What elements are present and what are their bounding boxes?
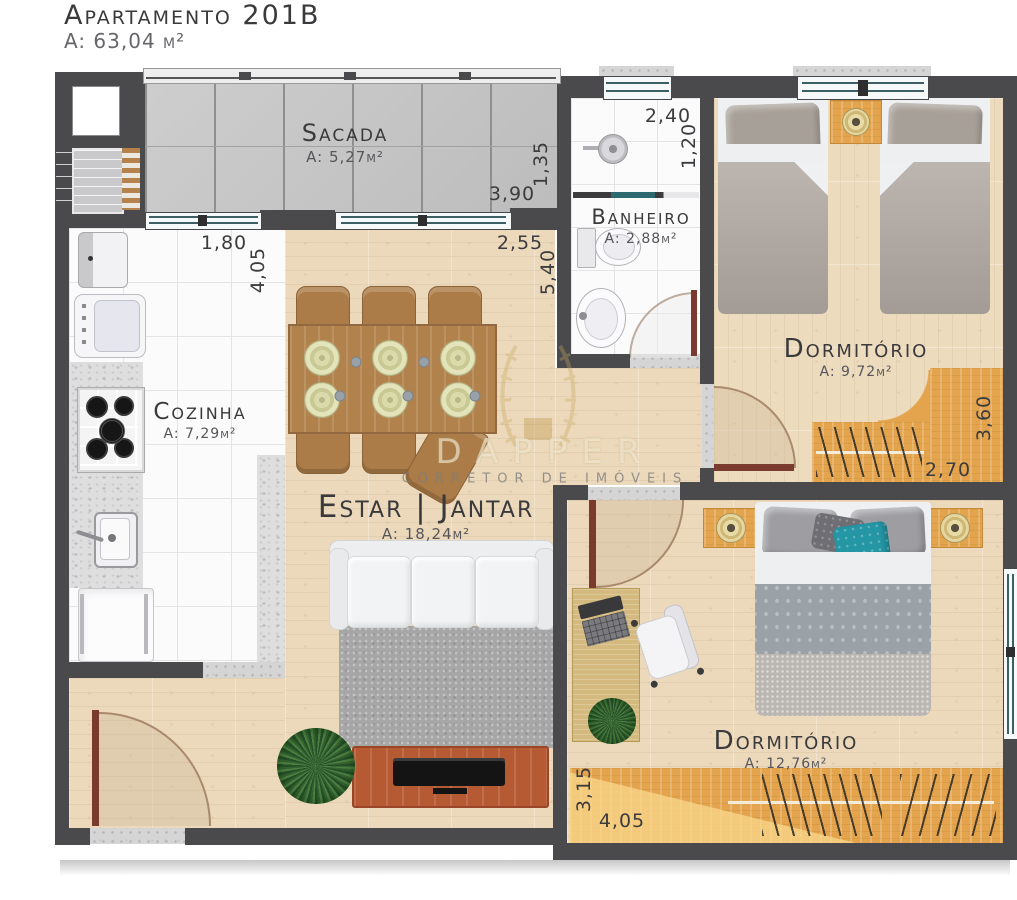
- outer-wall-right: [1003, 76, 1017, 568]
- nightstand-lamp: [716, 513, 746, 543]
- bedroom2-bottom-wall: [553, 843, 1017, 860]
- bathroom-wall-bottom: [557, 354, 630, 368]
- bathroom-faucet: [579, 312, 587, 320]
- room-label-cozinha: Cozinha: [153, 399, 246, 425]
- balcony-wall-segment: [260, 210, 335, 230]
- kitchen-balcony-window: [145, 212, 262, 230]
- dim-sacada-depth: 1,35: [530, 141, 552, 187]
- wardrobe-hangers: [762, 774, 882, 836]
- room-area-cozinha: A: 7,29m²: [164, 426, 237, 442]
- washing-machine-lid: [94, 300, 140, 352]
- railing-post: [239, 72, 251, 80]
- sofa-cushion: [347, 556, 411, 628]
- fridge: [78, 588, 154, 662]
- page-title: Apartamento 201B: [64, 0, 320, 31]
- plate: [304, 340, 340, 376]
- stove-burner-center: [99, 418, 125, 444]
- bedroom1-door: [714, 464, 794, 471]
- railing-post: [344, 72, 356, 80]
- wood-slat-vent: [122, 148, 140, 210]
- area-rug: [339, 626, 553, 748]
- plate: [372, 340, 408, 376]
- living-bedroom2-wall: [553, 485, 567, 828]
- hallway-floor: [555, 368, 714, 485]
- laundry-tank: [78, 232, 128, 288]
- dim-dorm2-depth: 3,15: [573, 766, 595, 812]
- double-bed: [755, 502, 931, 716]
- railing-post: [459, 72, 471, 80]
- room-area-dormitorio1: A: 9,72m²: [820, 364, 893, 380]
- bed-duvet: [718, 162, 828, 314]
- window-sill: [599, 66, 674, 76]
- entrance-door: [92, 710, 99, 826]
- stove-burner: [114, 396, 134, 416]
- balcony-wall-segment: [510, 208, 557, 230]
- top-wall: [557, 76, 603, 98]
- bedroom1-wall-left: [700, 98, 714, 384]
- plan-shadow: [60, 860, 1010, 876]
- stove-burner: [86, 396, 108, 418]
- bathroom-wall-left: [557, 98, 571, 368]
- dim-dorm2-width: 4,05: [599, 810, 645, 832]
- kitchen-faucet-dot: [108, 534, 116, 542]
- bed-duvet: [880, 162, 990, 314]
- dim-sacada-width: 3,90: [489, 183, 535, 205]
- twin-bed: [718, 96, 828, 314]
- sofa-armrest: [329, 548, 349, 630]
- top-wall: [670, 76, 797, 98]
- office-chair-wheel: [650, 680, 659, 689]
- potted-plant: [277, 728, 355, 804]
- sofa-cushion: [475, 556, 539, 628]
- sofa: [329, 540, 553, 630]
- cup: [403, 391, 414, 402]
- fridge-handle: [80, 594, 84, 654]
- plate: [372, 382, 408, 418]
- room-label-dormitorio2: Dormitório: [714, 726, 859, 756]
- nightstand-lamp: [842, 108, 870, 136]
- plate: [440, 340, 476, 376]
- bathroom-window: [603, 76, 672, 100]
- window-sill: [793, 66, 931, 76]
- cup: [470, 391, 481, 402]
- ac-condenser-unit: [72, 148, 124, 214]
- dim-banheiro-depth: 1,20: [678, 123, 700, 169]
- vent-lines: [56, 152, 72, 210]
- dim-cozinha-depth: 4,05: [247, 247, 269, 293]
- wardrobe-hangers: [900, 774, 996, 836]
- bedroom1-door-threshold: [702, 384, 714, 468]
- sofa-cushion: [411, 556, 475, 628]
- kitchen-bottom-wall: [69, 662, 203, 678]
- desk-plant: [588, 698, 636, 744]
- room-label-dormitorio1: Dormitório: [784, 334, 929, 364]
- balcony-railing: [143, 68, 561, 84]
- shower-head: [598, 134, 628, 164]
- tv: [393, 758, 505, 786]
- cup: [335, 391, 346, 402]
- cup: [419, 357, 430, 368]
- room-area-banheiro: A: 2,88m²: [605, 231, 678, 247]
- wardrobe-hangers: [816, 427, 922, 477]
- bedroom-divider-wall: [680, 482, 1003, 500]
- bathroom-sink-basin: [584, 298, 618, 340]
- room-label-sacada: Sacada: [302, 119, 389, 147]
- total-area-label: A: 63,04 m²: [64, 29, 185, 53]
- entrance-threshold: [90, 828, 185, 844]
- bedroom2-window: [1003, 568, 1017, 740]
- room-area-estar-jantar: A: 18,24m²: [382, 525, 470, 543]
- nightstand-lamp: [940, 513, 970, 543]
- living-balcony-sliding-door: [335, 212, 512, 230]
- kitchen-counter-strip: [257, 455, 285, 675]
- fridge-handle: [144, 594, 148, 654]
- room-area-dormitorio2: A: 12,76m²: [745, 756, 828, 772]
- shower-glass-partition: [573, 192, 699, 198]
- office-chair-wheel: [696, 667, 705, 676]
- laundry-tank-drain: [88, 256, 93, 261]
- outer-wall-right: [1003, 737, 1017, 860]
- dim-dorm1-width: 2,70: [925, 459, 971, 481]
- cup: [351, 357, 362, 368]
- bottom-wall: [55, 828, 90, 845]
- room-area-sacada: A: 5,27m²: [306, 148, 384, 166]
- room-label-banheiro: Banheiro: [591, 205, 690, 229]
- bathroom-door: [691, 290, 697, 356]
- tv-stand-bar: [433, 788, 467, 794]
- bottom-wall: [185, 828, 567, 845]
- room-label-estar-jantar: Estar | Jantar: [318, 489, 535, 525]
- bedroom2-door: [589, 500, 596, 588]
- twin-bed: [880, 96, 990, 314]
- bedroom2-door-threshold: [588, 487, 680, 500]
- bedroom1-window: [797, 76, 929, 100]
- bed-blanket: [755, 654, 931, 716]
- kitchen-pass-threshold: [203, 662, 285, 678]
- washing-machine-knobs: [82, 304, 86, 344]
- toilet-tank: [577, 228, 596, 268]
- service-shaft: [72, 86, 120, 136]
- dim-cozinha-width: 1,80: [201, 232, 247, 254]
- dim-dorm1-depth: 3,60: [973, 395, 995, 441]
- top-wall: [927, 76, 1003, 98]
- plate: [304, 382, 340, 418]
- dim-estar-depth: 5,40: [537, 249, 559, 295]
